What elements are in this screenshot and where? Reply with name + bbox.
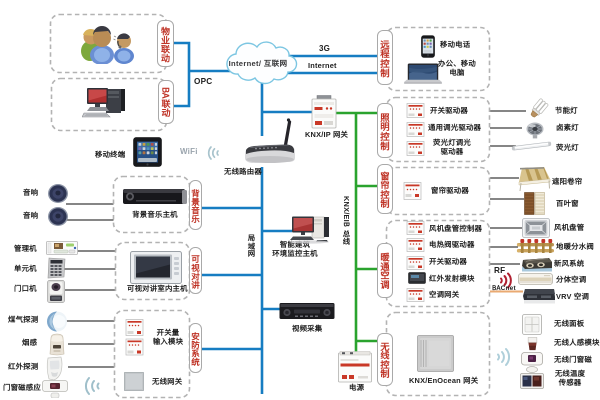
svg-text:Internet/ 互联网: Internet/ 互联网 [229,58,288,69]
